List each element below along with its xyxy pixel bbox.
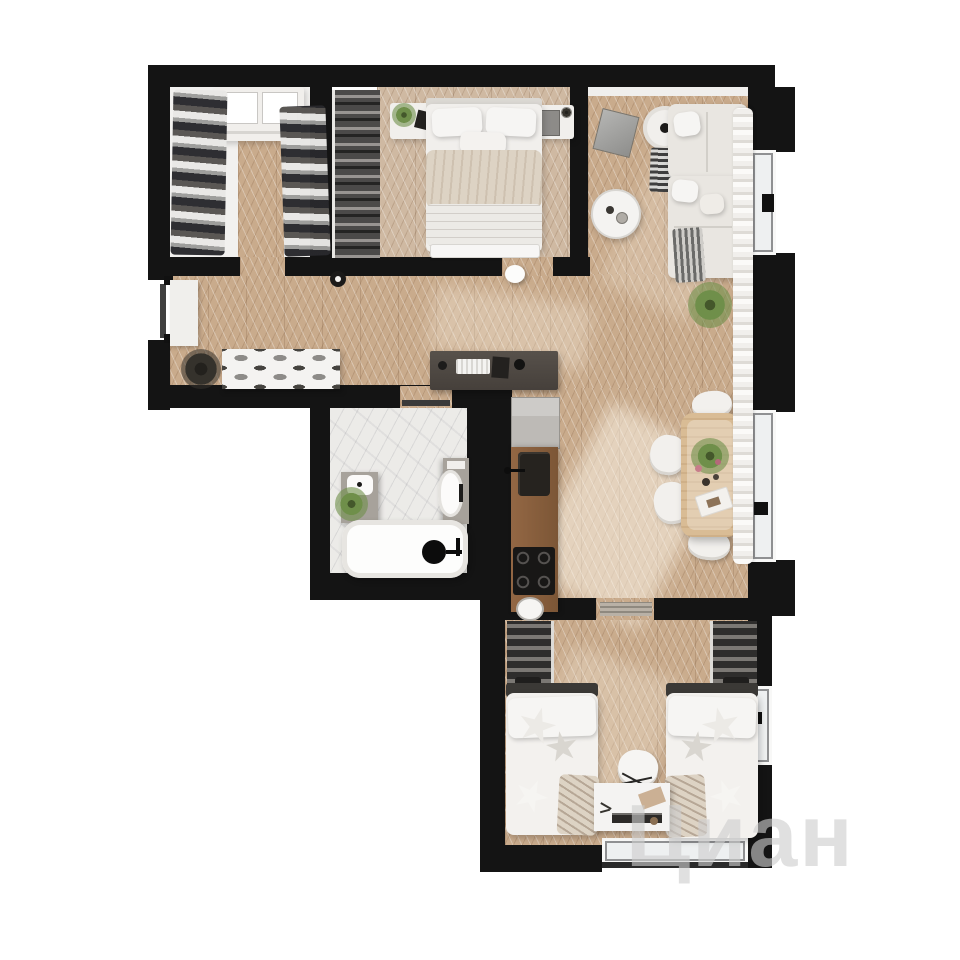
fridge: [511, 397, 560, 449]
wall-bedroom-bottom-a: [332, 257, 502, 276]
wall-right-1: [748, 87, 795, 152]
closet-clothes-rail-left: [171, 90, 228, 256]
sofa-cushion-line: [706, 112, 708, 172]
tub-faucet-icon: [456, 538, 460, 556]
counter-tray: [456, 359, 490, 374]
toilet-hinge-icon: [459, 484, 463, 502]
table-cup: [713, 474, 719, 480]
sink-faucet-icon: [357, 482, 362, 487]
counter-bowl: [514, 359, 525, 370]
cistern-shelf-decor: [447, 461, 465, 469]
kitchen-sink: [518, 452, 550, 496]
window-handle-icon: [762, 194, 774, 212]
bathroom-plant: [335, 487, 368, 521]
wall-top: [148, 65, 775, 87]
ceiling-light-icon: [505, 265, 525, 283]
closet-floor-strip: [238, 138, 284, 257]
counter-tablet: [491, 356, 509, 378]
tray-book: [706, 496, 721, 508]
coat-stand: [181, 349, 221, 389]
kids-bed-left: [506, 683, 598, 835]
bed-duvet: [426, 150, 542, 208]
living-room-floor-plant: [688, 282, 732, 328]
flower-accent: [695, 465, 702, 472]
coffee-table-decor: [616, 212, 628, 224]
decor-on-nightstand: [561, 107, 572, 118]
floor-plan-image: Циан: [0, 0, 960, 960]
wall-right-2: [748, 253, 795, 412]
right-window-middle: [750, 410, 776, 562]
wall-closet-bottom-b: [285, 257, 332, 276]
plant-on-nightstand: [392, 103, 416, 127]
tablet-on-nightstand: [540, 110, 560, 136]
coffee-table-decor: [606, 206, 614, 214]
wall-closet-bottom-a: [148, 257, 240, 276]
table-cup: [702, 478, 710, 486]
wall-bathroom-left: [310, 393, 330, 578]
bathtub: [342, 520, 468, 578]
kids-bed-pillow: [667, 695, 756, 738]
counter-bowl: [438, 361, 447, 370]
kitchen-faucet-base: [504, 467, 511, 474]
ceiling-light-icon: [330, 271, 346, 287]
wall-kids-bottom: [480, 845, 602, 872]
sofa-pillow: [699, 193, 725, 215]
flower-accent: [715, 459, 721, 465]
bathroom-door-leaf: [402, 400, 450, 406]
kitchen-counter: [511, 447, 558, 612]
wall-shaft: [467, 385, 512, 600]
entry-console: [170, 280, 198, 346]
light-bulb-icon: [335, 276, 341, 282]
sofa-pillow: [672, 110, 701, 137]
double-bed: [426, 98, 542, 257]
wall-kids-left: [480, 598, 505, 872]
dining-table: [681, 413, 739, 537]
toilet-bowl: [438, 470, 463, 517]
cian-watermark: Циан: [626, 786, 906, 886]
sofa-pillow: [671, 179, 699, 204]
window-handle-icon: [754, 502, 768, 515]
kitchen-bowl: [516, 597, 544, 621]
closet-door-gap: [240, 257, 285, 276]
shower-head-icon: [422, 540, 446, 564]
kids-bed-pillow: [507, 695, 596, 738]
shoe-cabinet: [222, 349, 340, 389]
bedroom-open-wardrobe: [332, 90, 380, 258]
kids-door-threshold: [600, 602, 652, 616]
kitchen-bar-counter: [430, 351, 558, 390]
wall-left-upper: [148, 65, 170, 280]
living-top-wall-face: [588, 87, 748, 96]
desk-pen-icon: [600, 809, 610, 814]
sofa-throw-blanket: [672, 227, 706, 283]
closet-clothes-rail-right: [279, 105, 330, 257]
bed-sheet-folds: [426, 204, 542, 246]
curtains-right: [733, 108, 753, 564]
bed-foot-bench: [430, 244, 540, 258]
entry-door-leaf: [160, 284, 166, 338]
coffee-table: [591, 189, 641, 239]
cooktop: [513, 547, 555, 595]
dresser-drawer: [222, 92, 258, 124]
